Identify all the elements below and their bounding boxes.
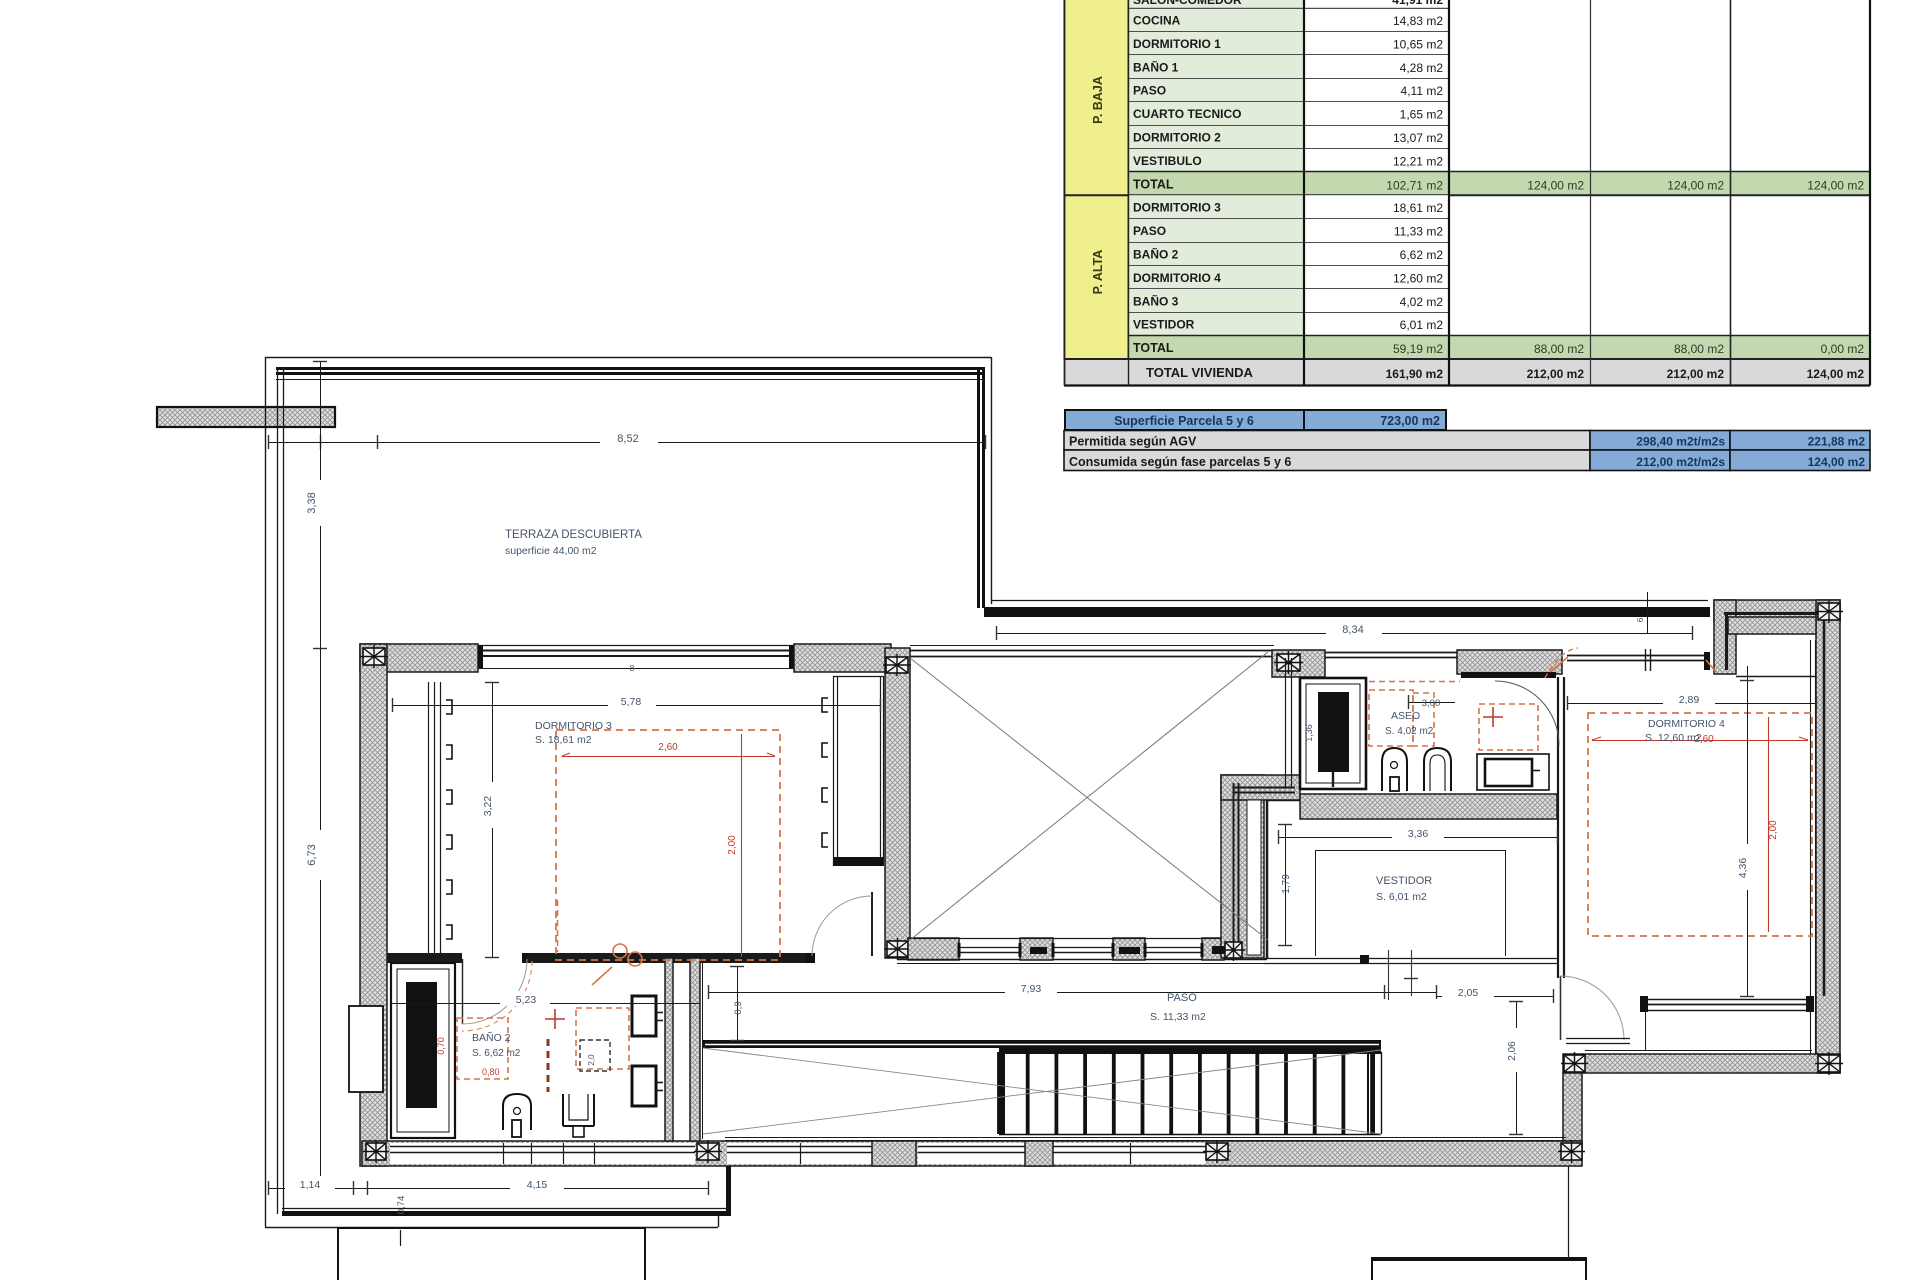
svg-text:41,91 m2: 41,91 m2 <box>1392 0 1443 7</box>
svg-text:DORMITORIO 1: DORMITORIO 1 <box>1133 37 1221 51</box>
svg-text:4,02 m2: 4,02 m2 <box>1400 295 1444 309</box>
svg-text:8,52: 8,52 <box>617 433 638 445</box>
svg-text:212,00 m2: 212,00 m2 <box>1667 367 1725 381</box>
svg-text:S. 18,61 m2: S. 18,61 m2 <box>535 734 592 746</box>
svg-text:0,00 m2: 0,00 m2 <box>1821 342 1865 356</box>
svg-text:S. 12,60 m2: S. 12,60 m2 <box>1645 732 1702 744</box>
svg-text:12,60 m2: 12,60 m2 <box>1393 271 1443 285</box>
svg-text:1,14: 1,14 <box>300 1179 321 1191</box>
svg-text:102,71 m2: 102,71 m2 <box>1386 178 1443 192</box>
svg-text:0,9: 0,9 <box>733 1001 744 1014</box>
svg-text:1,36: 1,36 <box>1304 724 1314 742</box>
svg-text:212,00 m2: 212,00 m2 <box>1527 367 1585 381</box>
svg-text:BAÑO 2: BAÑO 2 <box>1133 247 1179 262</box>
svg-text:6,73: 6,73 <box>306 844 318 865</box>
svg-text:VESTIDOR: VESTIDOR <box>1376 875 1432 887</box>
svg-text:124,00 m2: 124,00 m2 <box>1527 178 1584 192</box>
svg-text:DORMITORIO 3: DORMITORIO 3 <box>535 720 612 732</box>
svg-text:8: 8 <box>630 663 635 673</box>
svg-text:Superficie Parcela 5 y 6: Superficie Parcela 5 y 6 <box>1114 414 1254 428</box>
svg-text:124,00 m2: 124,00 m2 <box>1807 367 1865 381</box>
svg-text:2,0: 2,0 <box>587 1054 596 1066</box>
svg-text:TOTAL: TOTAL <box>1133 341 1174 355</box>
svg-text:0,70: 0,70 <box>436 1037 446 1055</box>
svg-text:723,00 m2: 723,00 m2 <box>1380 414 1440 428</box>
svg-text:11,33 m2: 11,33 m2 <box>1394 225 1443 239</box>
svg-text:Permitida según AGV: Permitida según AGV <box>1069 435 1197 449</box>
svg-text:BAÑO 3: BAÑO 3 <box>1133 293 1179 308</box>
svg-text:VESTIBULO: VESTIBULO <box>1133 154 1202 168</box>
svg-text:14,83 m2: 14,83 m2 <box>1393 14 1443 28</box>
svg-text:298,40 m2t/m2s: 298,40 m2t/m2s <box>1636 435 1725 449</box>
svg-text:PASO: PASO <box>1133 84 1166 98</box>
svg-text:6,01 m2: 6,01 m2 <box>1400 318 1444 332</box>
svg-text:4,15: 4,15 <box>527 1179 548 1191</box>
svg-text:TOTAL VIVIENDA: TOTAL VIVIENDA <box>1146 365 1254 380</box>
svg-text:SALON-COMEDOR: SALON-COMEDOR <box>1133 0 1242 7</box>
svg-text:2,00: 2,00 <box>1768 820 1779 840</box>
svg-text:S. 6,62 m2: S. 6,62 m2 <box>472 1048 521 1059</box>
svg-text:161,90 m2: 161,90 m2 <box>1386 367 1444 381</box>
svg-text:S. 4,02 m2: S. 4,02 m2 <box>1385 726 1434 737</box>
svg-text:88,00 m2: 88,00 m2 <box>1534 342 1584 356</box>
svg-text:TERRAZA DESCUBIERTA: TERRAZA DESCUBIERTA <box>505 529 642 541</box>
svg-text:ASEO: ASEO <box>1391 710 1420 722</box>
svg-text:BAÑO 2: BAÑO 2 <box>472 1031 511 1044</box>
svg-text:124,00 m2: 124,00 m2 <box>1807 178 1864 192</box>
svg-text:TOTAL: TOTAL <box>1133 177 1174 191</box>
svg-text:18,61 m2: 18,61 m2 <box>1393 201 1443 215</box>
svg-text:3,38: 3,38 <box>306 492 318 513</box>
svg-text:VESTIDOR: VESTIDOR <box>1133 318 1195 332</box>
svg-text:1,65 m2: 1,65 m2 <box>1400 108 1444 122</box>
svg-text:59,19 m2: 59,19 m2 <box>1393 342 1443 356</box>
svg-text:4,36: 4,36 <box>1737 858 1749 879</box>
svg-text:8,34: 8,34 <box>1342 624 1363 636</box>
svg-text:88,00 m2: 88,00 m2 <box>1674 342 1724 356</box>
svg-text:COCINA: COCINA <box>1133 14 1181 28</box>
svg-text:0,74: 0,74 <box>396 1196 407 1215</box>
svg-text:2,89: 2,89 <box>1679 694 1700 706</box>
svg-text:5,23: 5,23 <box>516 994 537 1006</box>
svg-text:10,65 m2: 10,65 m2 <box>1393 37 1443 51</box>
svg-text:6: 6 <box>1635 617 1645 622</box>
svg-text:CUARTO TECNICO: CUARTO TECNICO <box>1133 107 1241 121</box>
svg-text:212,00 m2t/m2s: 212,00 m2t/m2s <box>1636 455 1725 469</box>
svg-text:DORMITORIO 3: DORMITORIO 3 <box>1133 201 1221 215</box>
svg-text:1,79: 1,79 <box>1281 874 1292 894</box>
svg-text:2,05: 2,05 <box>1458 987 1479 999</box>
svg-text:DORMITORIO 4: DORMITORIO 4 <box>1133 271 1221 285</box>
svg-text:4,11 m2: 4,11 m2 <box>1401 84 1444 98</box>
svg-text:13,07 m2: 13,07 m2 <box>1393 131 1443 145</box>
svg-text:0,80: 0,80 <box>482 1067 500 1077</box>
svg-text:2,06: 2,06 <box>1507 1041 1518 1061</box>
svg-text:3,36: 3,36 <box>1408 828 1429 840</box>
svg-text:221,88 m2: 221,88 m2 <box>1808 435 1866 449</box>
svg-text:4,28 m2: 4,28 m2 <box>1400 61 1444 75</box>
svg-text:6,62 m2: 6,62 m2 <box>1400 248 1444 262</box>
svg-text:PASO: PASO <box>1133 224 1166 238</box>
svg-text:124,00 m2: 124,00 m2 <box>1667 178 1724 192</box>
svg-text:5,78: 5,78 <box>621 696 642 708</box>
svg-text:124,00 m2: 124,00 m2 <box>1808 455 1866 469</box>
svg-text:DORMITORIO 4: DORMITORIO 4 <box>1648 718 1725 730</box>
svg-text:2,00: 2,00 <box>727 835 738 855</box>
svg-text:7,93: 7,93 <box>1021 983 1042 995</box>
svg-text:P. ALTA: P. ALTA <box>1091 250 1105 295</box>
svg-text:2,60: 2,60 <box>658 742 678 753</box>
svg-text:3,22: 3,22 <box>482 796 494 817</box>
svg-text:Consumida según fase parcelas: Consumida según fase parcelas 5 y 6 <box>1069 455 1291 469</box>
svg-text:S. 6,01 m2: S. 6,01 m2 <box>1376 891 1427 903</box>
svg-text:12,21 m2: 12,21 m2 <box>1393 154 1443 168</box>
svg-text:S. 11,33 m2: S. 11,33 m2 <box>1150 1011 1206 1023</box>
svg-text:PASO: PASO <box>1167 992 1197 1004</box>
svg-text:DORMITORIO 2: DORMITORIO 2 <box>1133 131 1221 145</box>
svg-text:BAÑO 1: BAÑO 1 <box>1133 59 1179 74</box>
svg-text:P. BAJA: P. BAJA <box>1091 76 1105 124</box>
svg-text:superficie 44,00 m2: superficie 44,00 m2 <box>505 545 597 557</box>
svg-text:3,00: 3,00 <box>1422 698 1441 709</box>
